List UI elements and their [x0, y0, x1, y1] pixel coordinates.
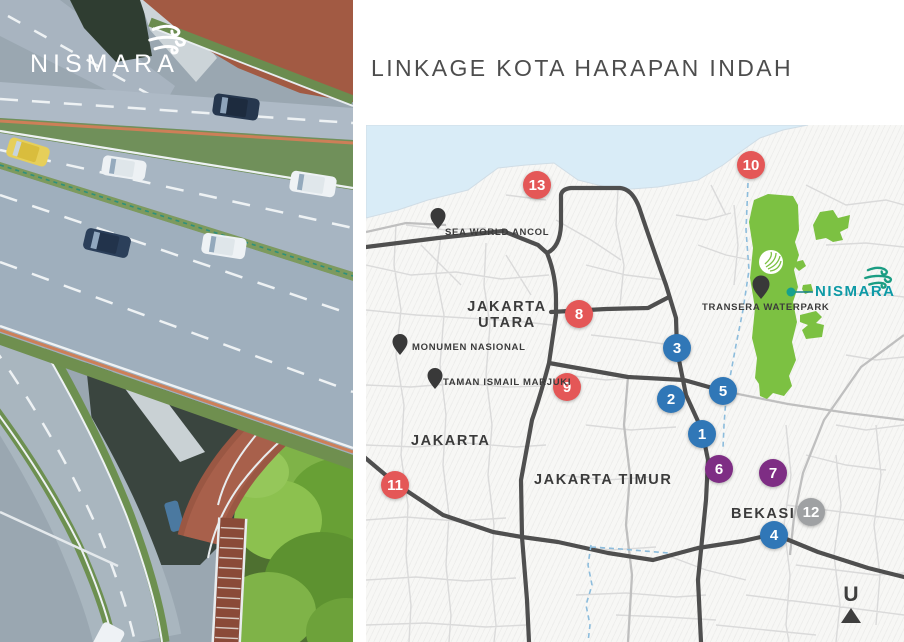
aerial-highway-photo: NISMARA — [0, 0, 353, 642]
marker-number: 1 — [698, 426, 706, 443]
region-label-jakarta: JAKARTA — [411, 433, 490, 449]
map-marker-2: 2 — [657, 385, 685, 413]
wind-swirl-icon — [864, 263, 898, 293]
monas-pin-icon — [393, 334, 408, 355]
marker-number: 5 — [719, 383, 727, 400]
map-marker-1: 1 — [688, 420, 716, 448]
brand-logo: NISMARA — [28, 20, 248, 90]
brand-name: NISMARA — [30, 50, 179, 79]
region-label-jakarta-utara: JAKARTA UTARA — [461, 299, 553, 331]
map-marker-11: 11 — [381, 471, 409, 499]
marker-number: 11 — [387, 477, 403, 494]
location-dot-icon — [787, 288, 796, 297]
region-label-line: UTARA — [461, 315, 553, 331]
minor-roads — [366, 185, 904, 642]
marker-number: 10 — [743, 157, 760, 174]
poi-label-transera-waterpark: TRANSERA WATERPARK — [702, 302, 829, 313]
region-label-bekasi: BEKASI — [731, 506, 795, 522]
marker-number: 12 — [803, 504, 820, 521]
marker-number: 4 — [770, 527, 778, 544]
marker-number: 13 — [529, 177, 546, 194]
north-arrow-icon — [841, 608, 861, 623]
poi-label-monumen-nasional: MONUMEN NASIONAL — [412, 342, 526, 353]
marker-number: 7 — [769, 465, 777, 482]
marker-number: 3 — [673, 340, 681, 357]
north-indicator: U — [834, 585, 868, 623]
map-marker-6: 6 — [705, 455, 733, 483]
page-title: LINKAGE KOTA HARAPAN INDAH — [371, 55, 891, 82]
marker-number: 8 — [575, 306, 583, 323]
map-marker-10: 10 — [737, 151, 765, 179]
map-marker-7: 7 — [759, 459, 787, 487]
marker-number: 2 — [667, 391, 675, 408]
map-marker-13: 13 — [523, 171, 551, 199]
region-label-line: JAKARTA — [461, 299, 553, 315]
poi-label-taman-ismail-marjuki: TAMAN ISMAIL MARJUKI — [443, 377, 571, 388]
map-marker-5: 5 — [709, 377, 737, 405]
map-marker-12: 12 — [797, 498, 825, 526]
aerial-photo-graphic — [0, 0, 353, 642]
footbridge-stairs — [213, 517, 247, 642]
slide: NISMARA LINKAGE KOTA HARAPAN INDAH — [0, 0, 904, 642]
linkage-map: 1 2 3 4 5 6 7 8 9 10 11 12 13 SEA WORLD … — [366, 125, 904, 642]
leaf-emblem-icon — [759, 250, 783, 274]
map-marker-4: 4 — [760, 521, 788, 549]
map-marker-8: 8 — [565, 300, 593, 328]
marker-number: 6 — [715, 461, 723, 478]
north-label: U — [834, 585, 868, 605]
poi-label-sea-world-ancol: SEA WORLD ANCOL — [445, 227, 549, 238]
region-label-jakarta-timur: JAKARTA TIMUR — [534, 472, 672, 488]
map-marker-3: 3 — [663, 334, 691, 362]
